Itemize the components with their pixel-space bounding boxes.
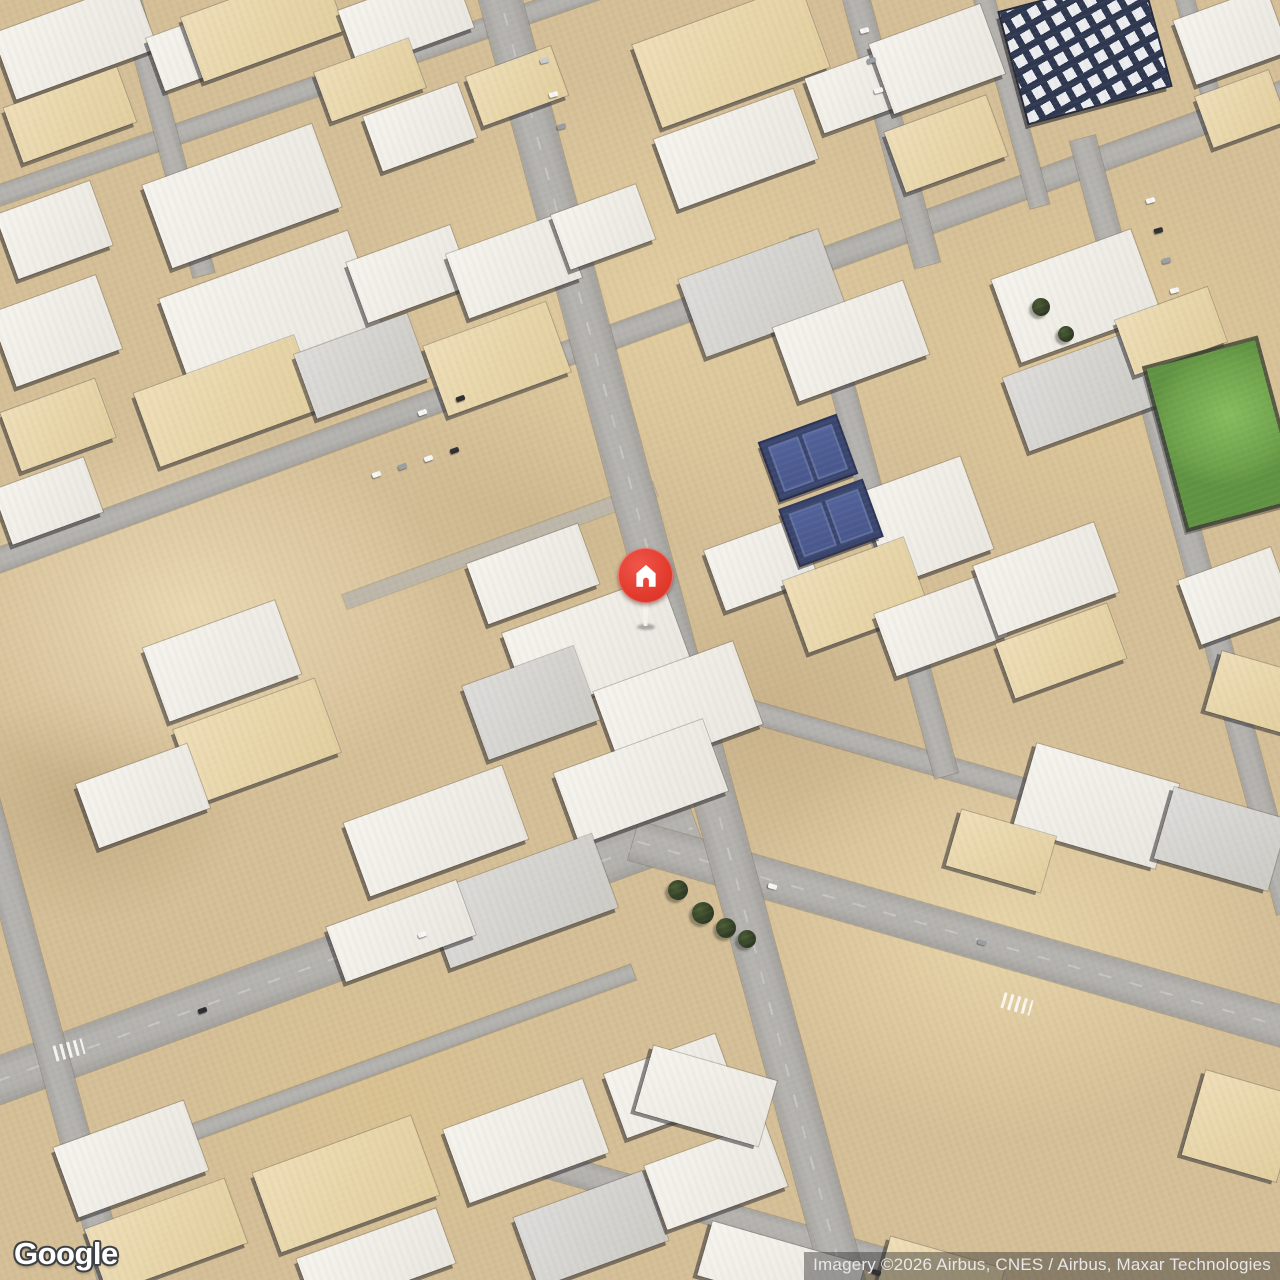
car: [977, 939, 987, 946]
car: [197, 1007, 207, 1015]
car: [867, 57, 877, 64]
car: [371, 471, 381, 479]
car: [397, 463, 407, 471]
place-pin[interactable]: [617, 548, 675, 632]
car: [417, 931, 427, 939]
car: [423, 455, 433, 463]
car: [1162, 257, 1172, 264]
map-canvas[interactable]: Google Imagery ©2026 Airbus, CNES / Airb…: [0, 0, 1280, 1280]
car: [549, 91, 559, 98]
car: [455, 395, 465, 403]
car: [1146, 197, 1156, 204]
home-icon: [631, 561, 661, 591]
imagery-attribution: Imagery ©2026 Airbus, CNES / Airbus, Max…: [804, 1252, 1280, 1280]
tree: [1058, 326, 1074, 342]
car: [1154, 227, 1164, 234]
car: [449, 447, 459, 455]
crosswalk: [1000, 992, 1033, 1016]
car: [874, 87, 884, 94]
tree: [692, 902, 714, 924]
car: [1170, 287, 1180, 294]
google-logo[interactable]: Google: [14, 1236, 118, 1272]
car: [557, 123, 567, 130]
car: [540, 57, 550, 64]
tree: [738, 930, 756, 948]
tree: [716, 918, 736, 938]
pin-head: [618, 548, 673, 603]
tree: [1032, 298, 1050, 316]
tree: [668, 880, 688, 900]
car: [767, 883, 777, 890]
car: [860, 27, 870, 34]
car: [417, 409, 427, 417]
crosswalk: [52, 1038, 85, 1061]
cars-trees-layer: [0, 0, 1280, 1280]
